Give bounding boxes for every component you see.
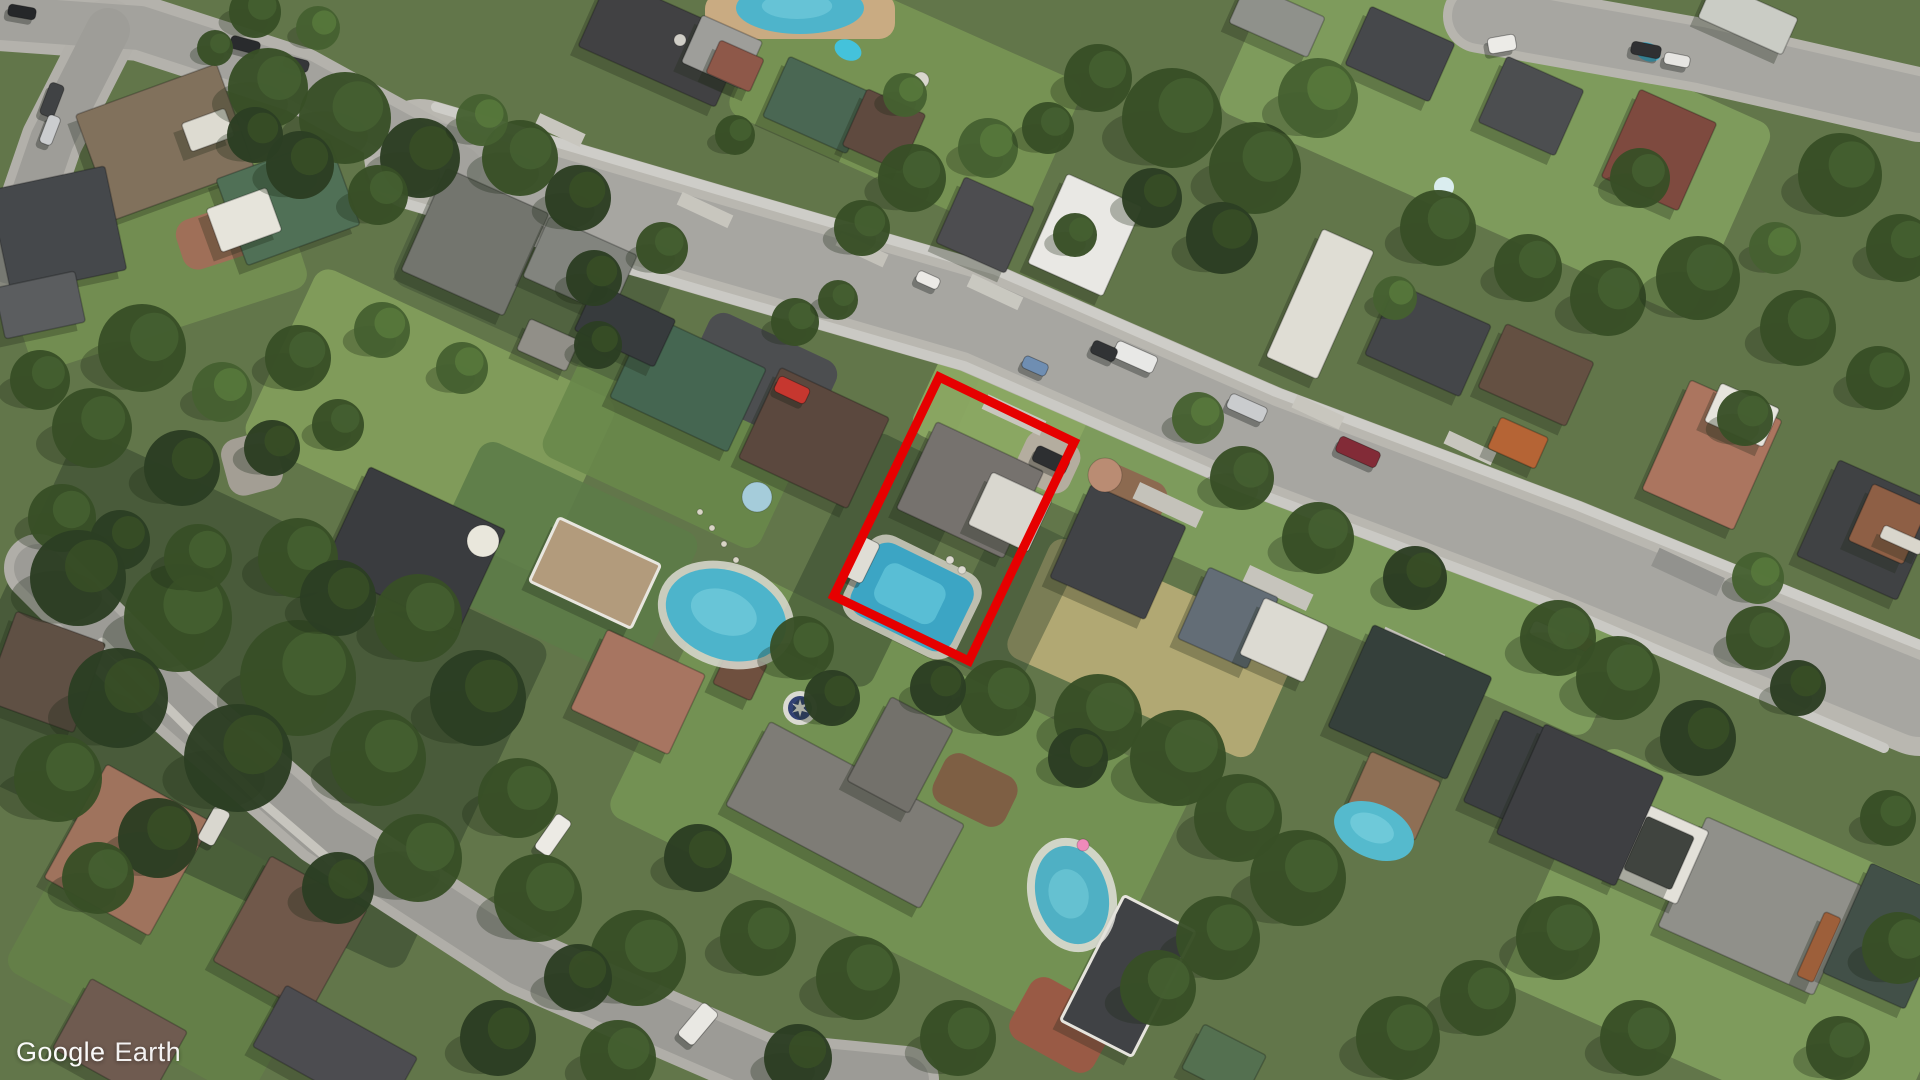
- watermark-product-text: Earth: [114, 1037, 181, 1067]
- watermark-brand-text: Google: [16, 1037, 105, 1067]
- google-earth-watermark: GoogleEarth: [16, 1039, 181, 1066]
- atmospheric-haze: [0, 0, 1920, 1080]
- google-earth-canvas[interactable]: GoogleEarth: [0, 0, 1920, 1080]
- aerial-imagery[interactable]: [0, 0, 1920, 1080]
